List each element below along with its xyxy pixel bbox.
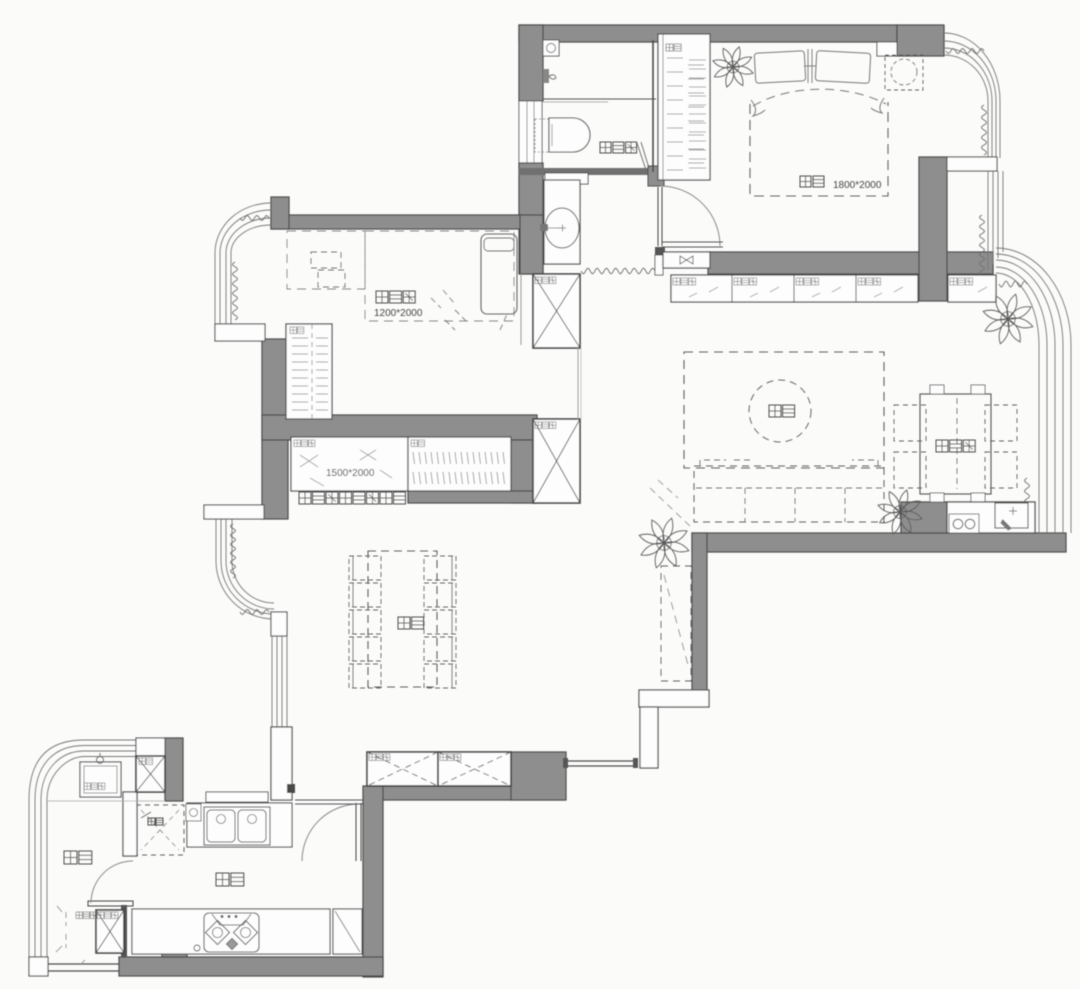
svg-text:1200*2000: 1200*2000 [374, 308, 423, 319]
svg-text:1500*2000: 1500*2000 [326, 468, 375, 479]
svg-text:1800*2000: 1800*2000 [833, 180, 882, 191]
